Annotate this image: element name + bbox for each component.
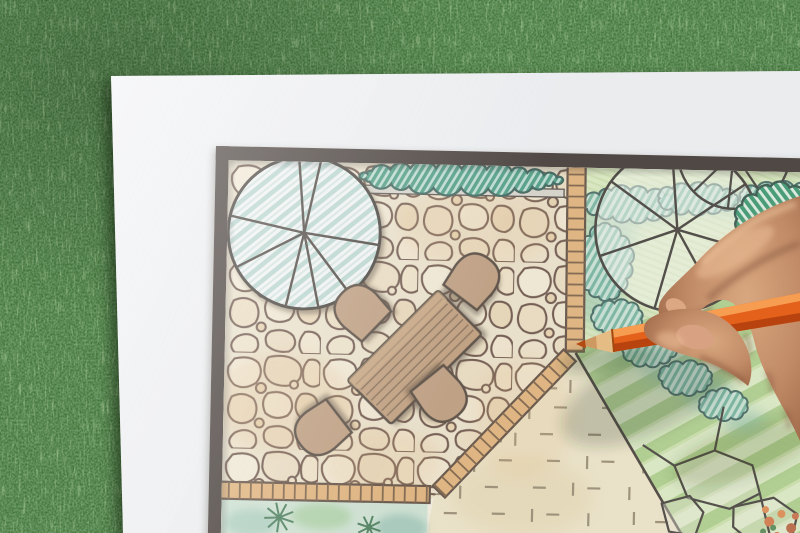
paper-sheet: [0, 0, 800, 533]
garden-plan: [207, 146, 800, 533]
plan-drawing: [220, 160, 800, 533]
paper-shadow-wrap: [0, 0, 800, 533]
scene: [0, 0, 800, 533]
